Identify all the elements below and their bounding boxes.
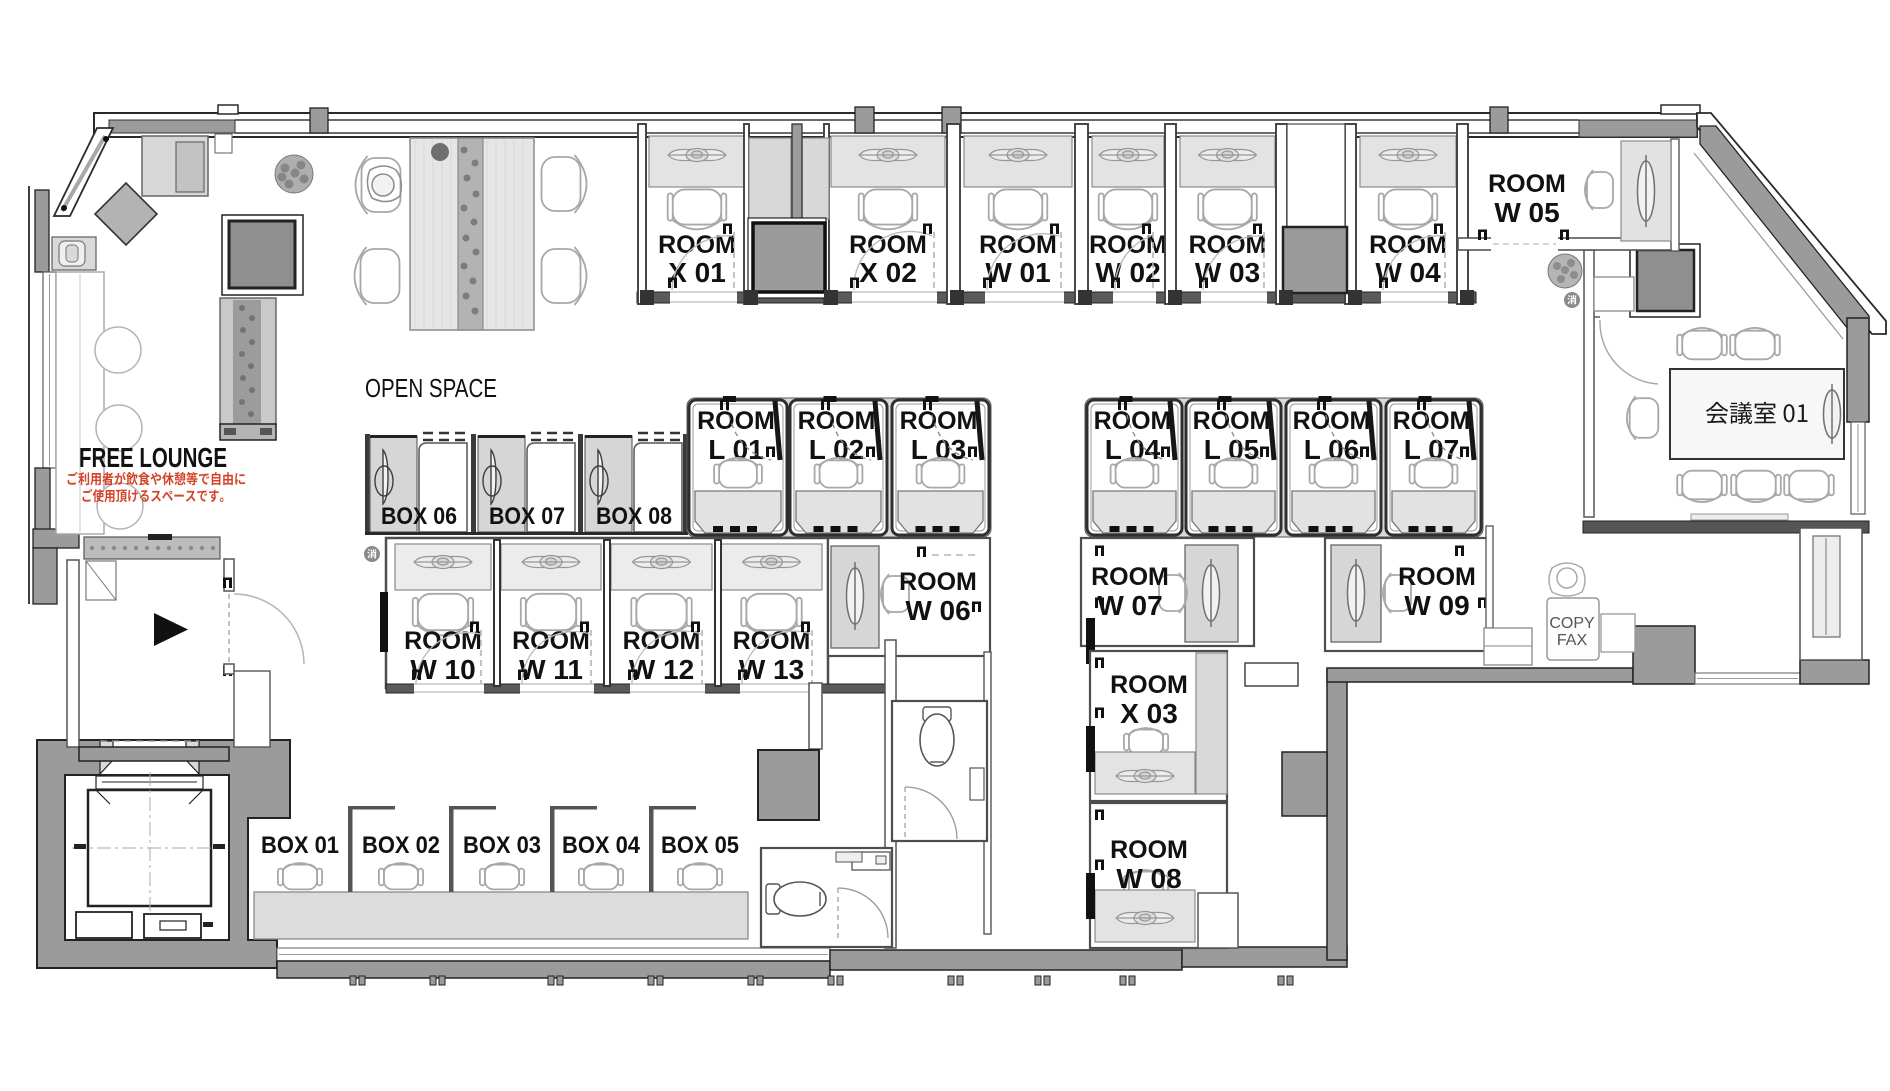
svg-text:ROOM: ROOM: [1089, 231, 1167, 259]
svg-text:BOX 05: BOX 05: [661, 832, 739, 859]
svg-text:FREE LOUNGE: FREE LOUNGE: [79, 442, 227, 473]
svg-text:ROOM: ROOM: [1193, 407, 1271, 435]
svg-text:ROOM: ROOM: [798, 407, 876, 435]
svg-text:ROOM: ROOM: [1488, 170, 1566, 198]
svg-text:BOX 02: BOX 02: [362, 832, 440, 859]
svg-text:ROOM: ROOM: [1293, 407, 1371, 435]
svg-text:OPEN SPACE: OPEN SPACE: [365, 373, 497, 403]
svg-text:ROOM: ROOM: [900, 407, 978, 435]
svg-text:ROOM: ROOM: [1094, 407, 1172, 435]
svg-text:BOX 06: BOX 06: [381, 503, 457, 530]
svg-text:BOX 01: BOX 01: [261, 832, 339, 859]
svg-text:BOX 07: BOX 07: [489, 503, 565, 530]
svg-text:BOX 04: BOX 04: [562, 832, 641, 859]
svg-text:ROOM: ROOM: [1393, 407, 1471, 435]
svg-text:W 03: W 03: [1195, 257, 1260, 288]
svg-text:X 02: X 02: [859, 257, 917, 288]
svg-text:W 08: W 08: [1116, 863, 1181, 894]
svg-text:W 06: W 06: [905, 595, 970, 626]
svg-text:FAX: FAX: [1557, 632, 1588, 649]
svg-text:ROOM: ROOM: [697, 407, 775, 435]
svg-text:BOX 08: BOX 08: [596, 503, 672, 530]
svg-text:W 07: W 07: [1097, 590, 1162, 621]
svg-text:X 03: X 03: [1120, 698, 1178, 729]
svg-text:ROOM: ROOM: [1110, 836, 1188, 864]
svg-text:ROOM: ROOM: [899, 568, 977, 596]
svg-text:W 05: W 05: [1494, 197, 1559, 228]
svg-text:ROOM: ROOM: [1091, 563, 1169, 591]
svg-text:ROOM: ROOM: [1398, 563, 1476, 591]
svg-text:W 09: W 09: [1404, 590, 1469, 621]
svg-text:ROOM: ROOM: [979, 231, 1057, 259]
svg-text:ROOM: ROOM: [1110, 671, 1188, 699]
svg-text:BOX 03: BOX 03: [463, 832, 541, 859]
svg-text:W 02: W 02: [1095, 257, 1160, 288]
svg-text:COPY: COPY: [1549, 615, 1595, 632]
